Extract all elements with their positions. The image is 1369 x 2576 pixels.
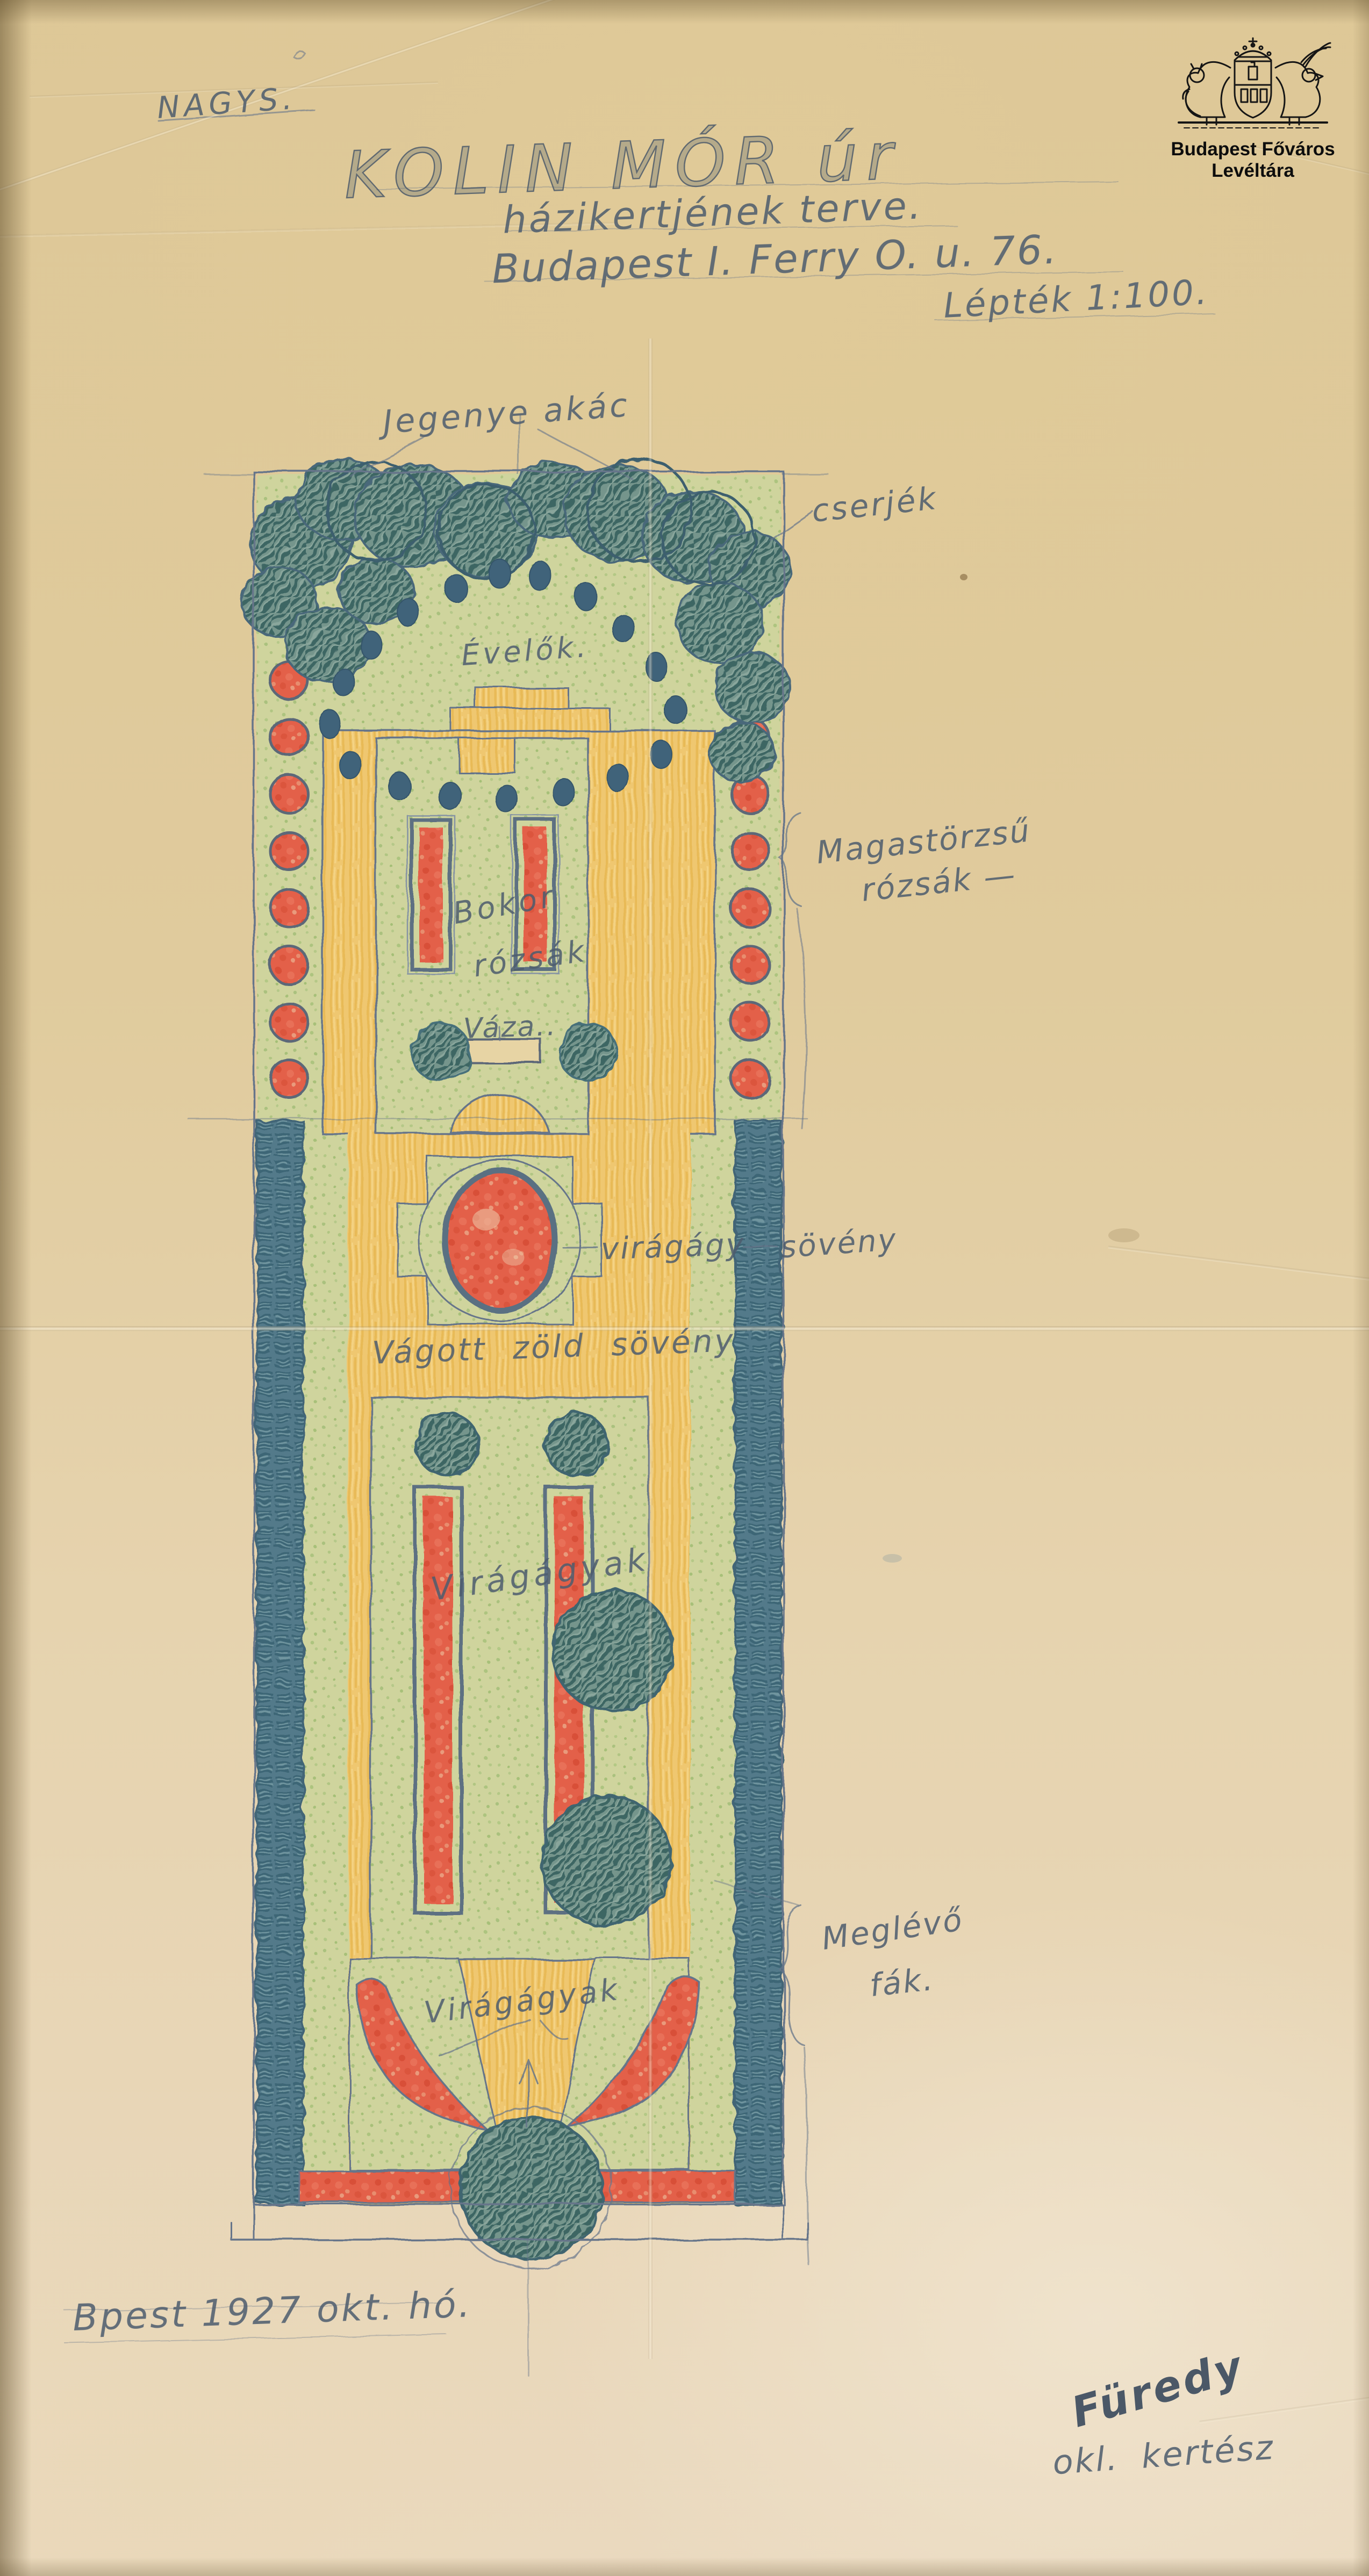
garden-plan-drawing [0,0,1369,2576]
paper-edge-shadow [0,0,31,2576]
paper-edge-shadow [0,0,1369,24]
archive-stamp: Budapest Főváros Levéltára [1144,35,1362,182]
central-flowerbed-parterre [398,1156,602,1324]
archive-name: Budapest Főváros Levéltára [1144,139,1362,182]
label-flower-bed: virágágy [600,1227,746,1267]
scanned-garden-plan-sheet: NAGYS. KOLIN MÓR úr házikertjének terve.… [0,0,1369,2576]
paper-edge-shadow [0,2558,1369,2576]
label-vase: Váza.. [463,1010,557,1045]
budapest-coat-of-arms-icon [1144,35,1361,136]
paper-edge-shadow [1353,0,1369,2576]
label-existing-trees-2: fák. [868,1961,936,2004]
